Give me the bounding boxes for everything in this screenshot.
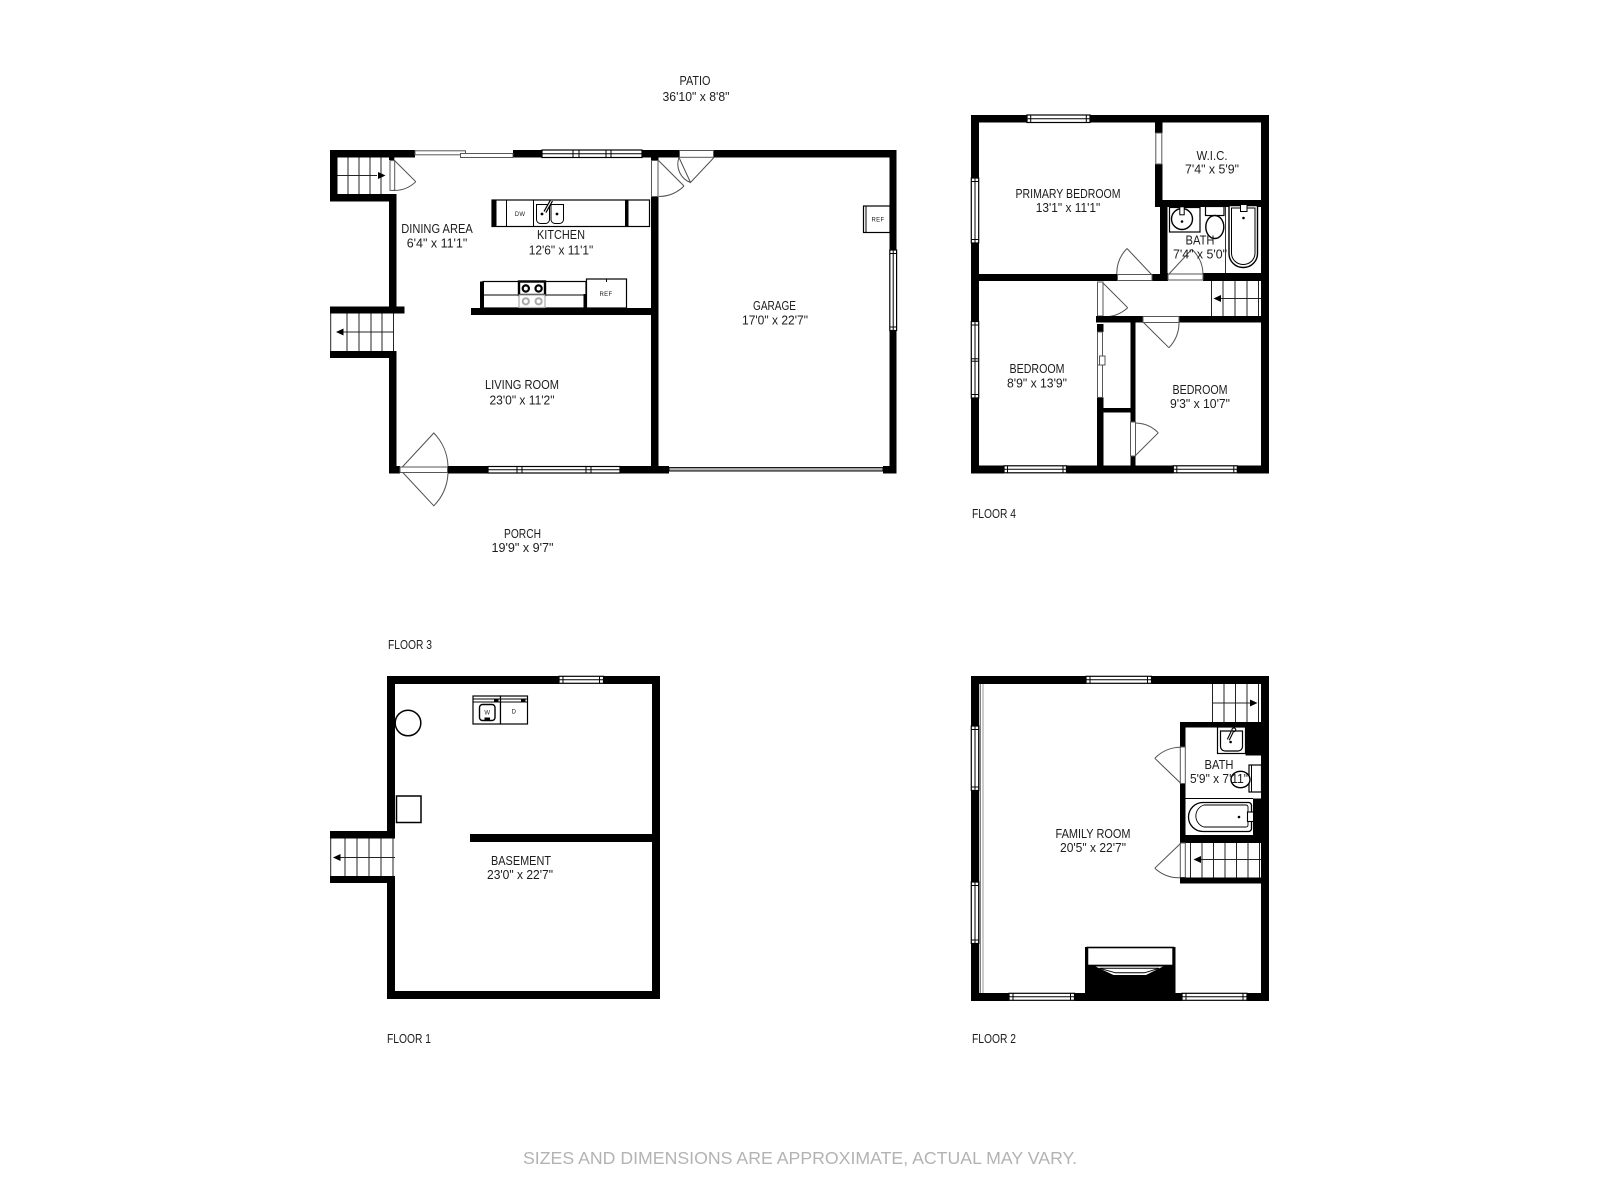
svg-text:12'6" x 11'1": 12'6" x 11'1"	[529, 243, 594, 258]
svg-text:17'0" x 22'7": 17'0" x 22'7"	[742, 313, 808, 328]
svg-text:DINING AREA: DINING AREA	[401, 221, 473, 236]
svg-text:GARAGE: GARAGE	[753, 298, 796, 313]
svg-text:23'0" x 22'7": 23'0" x 22'7"	[487, 867, 553, 882]
svg-text:19'9" x 9'7": 19'9" x 9'7"	[492, 540, 554, 555]
svg-text:BASEMENT: BASEMENT	[491, 853, 551, 868]
svg-text:13'1" x 11'1": 13'1" x 11'1"	[1036, 200, 1101, 215]
svg-text:PATIO: PATIO	[680, 73, 711, 88]
svg-text:W: W	[484, 711, 490, 717]
svg-text:FLOOR 4: FLOOR 4	[972, 506, 1016, 521]
svg-text:7'4" x 5'0": 7'4" x 5'0"	[1173, 247, 1227, 262]
svg-text:23'0" x 11'2": 23'0" x 11'2"	[490, 393, 555, 408]
svg-text:D: D	[512, 710, 517, 716]
svg-text:KITCHEN: KITCHEN	[537, 227, 585, 242]
svg-text:FLOOR 2: FLOOR 2	[972, 1031, 1016, 1046]
svg-text:REF: REF	[600, 292, 613, 298]
svg-text:36'10" x 8'8": 36'10" x 8'8"	[663, 89, 730, 104]
svg-text:9'3" x 10'7": 9'3" x 10'7"	[1170, 396, 1230, 411]
svg-text:BATH: BATH	[1205, 757, 1234, 772]
svg-text:PRIMARY BEDROOM: PRIMARY BEDROOM	[1016, 186, 1121, 201]
svg-text:FAMILY ROOM: FAMILY ROOM	[1056, 826, 1131, 841]
svg-text:PORCH: PORCH	[504, 526, 541, 541]
svg-text:6'4" x 11'1": 6'4" x 11'1"	[407, 236, 468, 251]
svg-text:7'4" x 5'9": 7'4" x 5'9"	[1185, 162, 1239, 177]
svg-text:FLOOR 1: FLOOR 1	[387, 1031, 431, 1046]
svg-text:FLOOR 3: FLOOR 3	[388, 637, 432, 652]
svg-text:SIZES AND DIMENSIONS ARE APPRO: SIZES AND DIMENSIONS ARE APPROXIMATE, AC…	[523, 1148, 1077, 1168]
svg-text:BATH: BATH	[1186, 233, 1215, 248]
svg-text:BEDROOM: BEDROOM	[1010, 361, 1065, 376]
svg-text:LIVING ROOM: LIVING ROOM	[485, 377, 559, 392]
svg-text:BEDROOM: BEDROOM	[1173, 382, 1228, 397]
svg-text:20'5" x 22'7": 20'5" x 22'7"	[1060, 840, 1126, 855]
svg-text:DW: DW	[515, 212, 526, 218]
svg-text:REF: REF	[872, 218, 885, 224]
svg-text:8'9" x 13'9": 8'9" x 13'9"	[1007, 376, 1067, 391]
svg-text:5'9" x 7'11": 5'9" x 7'11"	[1190, 771, 1248, 786]
